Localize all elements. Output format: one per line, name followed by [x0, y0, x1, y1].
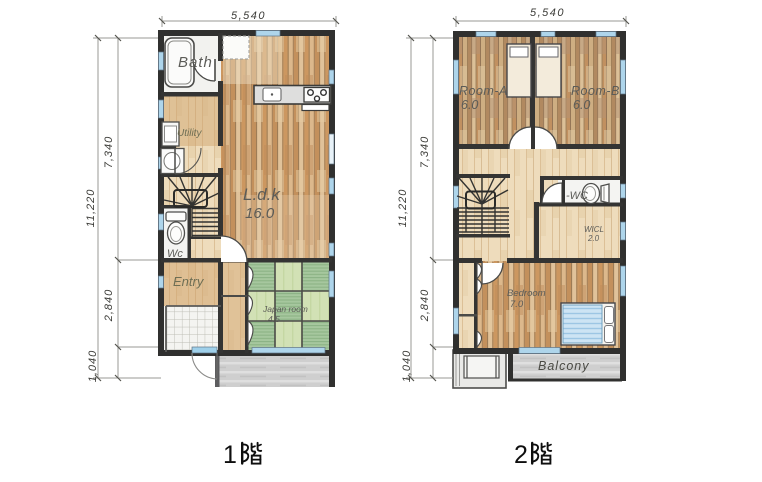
svg-text:11,220: 11,220: [85, 189, 97, 228]
svg-text:Room-B: Room-B: [571, 84, 620, 98]
svg-text:6.0: 6.0: [573, 98, 590, 112]
svg-text:7,340: 7,340: [103, 136, 115, 169]
svg-text:2.0: 2.0: [587, 234, 600, 243]
svg-text:16.0: 16.0: [245, 205, 275, 222]
svg-text:1,040: 1,040: [87, 350, 99, 383]
svg-text:Japan room: Japan room: [262, 304, 308, 314]
svg-text:5,540: 5,540: [530, 7, 565, 19]
svg-text:1,040: 1,040: [401, 350, 413, 383]
svg-text:Room-A: Room-A: [459, 84, 508, 98]
svg-text:7,340: 7,340: [419, 136, 431, 169]
svg-text:2,840: 2,840: [419, 289, 431, 323]
svg-text:L.d.k: L.d.k: [243, 185, 281, 204]
svg-text:-WC: -WC: [566, 190, 588, 202]
svg-text:Wc: Wc: [167, 248, 183, 260]
svg-text:Utility: Utility: [177, 128, 202, 139]
svg-text:Balcony: Balcony: [538, 359, 589, 373]
svg-text:6.0: 6.0: [461, 98, 478, 112]
svg-text:2,840: 2,840: [103, 289, 115, 323]
svg-text:2: 2: [514, 441, 528, 469]
svg-text:Bedroom: Bedroom: [507, 288, 546, 299]
svg-text:Entry: Entry: [173, 274, 205, 289]
svg-text:7.0: 7.0: [510, 299, 524, 310]
svg-text:Bath: Bath: [178, 54, 213, 71]
svg-text:11,220: 11,220: [397, 189, 409, 228]
svg-text:5,540: 5,540: [231, 10, 266, 22]
svg-text:WICL: WICL: [584, 225, 604, 234]
svg-text:1: 1: [223, 441, 237, 469]
svg-text:4.5: 4.5: [268, 314, 280, 324]
